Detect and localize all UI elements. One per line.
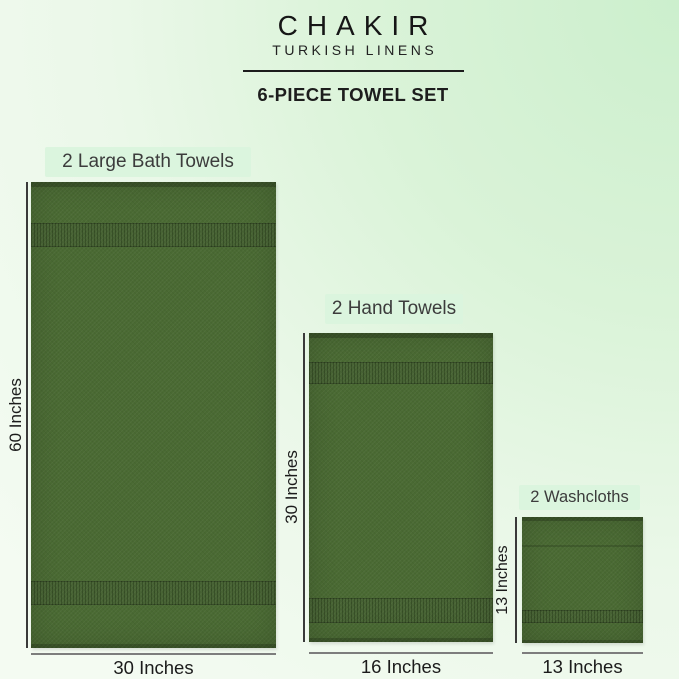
brand-header: CHAKIR TURKISH LINENS 6-PIECE TOWEL SET [203,0,503,106]
towel-top-fold [522,517,643,521]
hand-width-measure-line [309,652,493,654]
hand-width-dimension-label: 16 Inches [309,656,493,678]
towel-set-infographic: CHAKIR TURKISH LINENS 6-PIECE TOWEL SET … [0,0,679,679]
brand-tagline: TURKISH LINENS [203,42,503,58]
towel-top-fold [31,182,276,187]
bath-height-dimension-label: 60 Inches [6,378,26,452]
wash-height-dimension-label: 13 Inches [494,545,512,614]
hand-height-dimension-label: 30 Inches [282,450,302,524]
bath-width-dimension-label: 30 Inches [31,657,276,679]
wash-width-measure-line [522,652,643,654]
towel-bottom-hem [31,644,276,648]
bath-width-measure-line [31,653,276,655]
bath-towels-label: 2 Large Bath Towels [45,147,251,177]
towel-bottom-hem [309,638,493,642]
header-divider [243,70,464,72]
washcloth-image [522,517,643,643]
towel-dobby-band-bottom [31,581,276,605]
towel-top-fold [309,333,493,338]
wash-height-measure-line [515,517,517,643]
towel-dobby-band-bottom [309,598,493,623]
bath-height-measure-line [26,182,28,648]
towel-top-seam [522,545,643,547]
towel-dobby-band-top [31,223,276,247]
bath-towel-image [31,182,276,648]
brand-name: CHAKIR [203,11,503,40]
hand-towel-image [309,333,493,642]
hand-towels-label: 2 Hand Towels [325,294,463,324]
set-title: 6-PIECE TOWEL SET [203,84,503,106]
hand-height-measure-line [303,333,305,642]
towel-dobby-band-top [309,362,493,384]
towel-bottom-hem [522,640,643,643]
towel-dobby-band-bottom [522,610,643,623]
washcloths-label: 2 Washcloths [519,485,640,510]
wash-width-dimension-label: 13 Inches [522,656,643,678]
